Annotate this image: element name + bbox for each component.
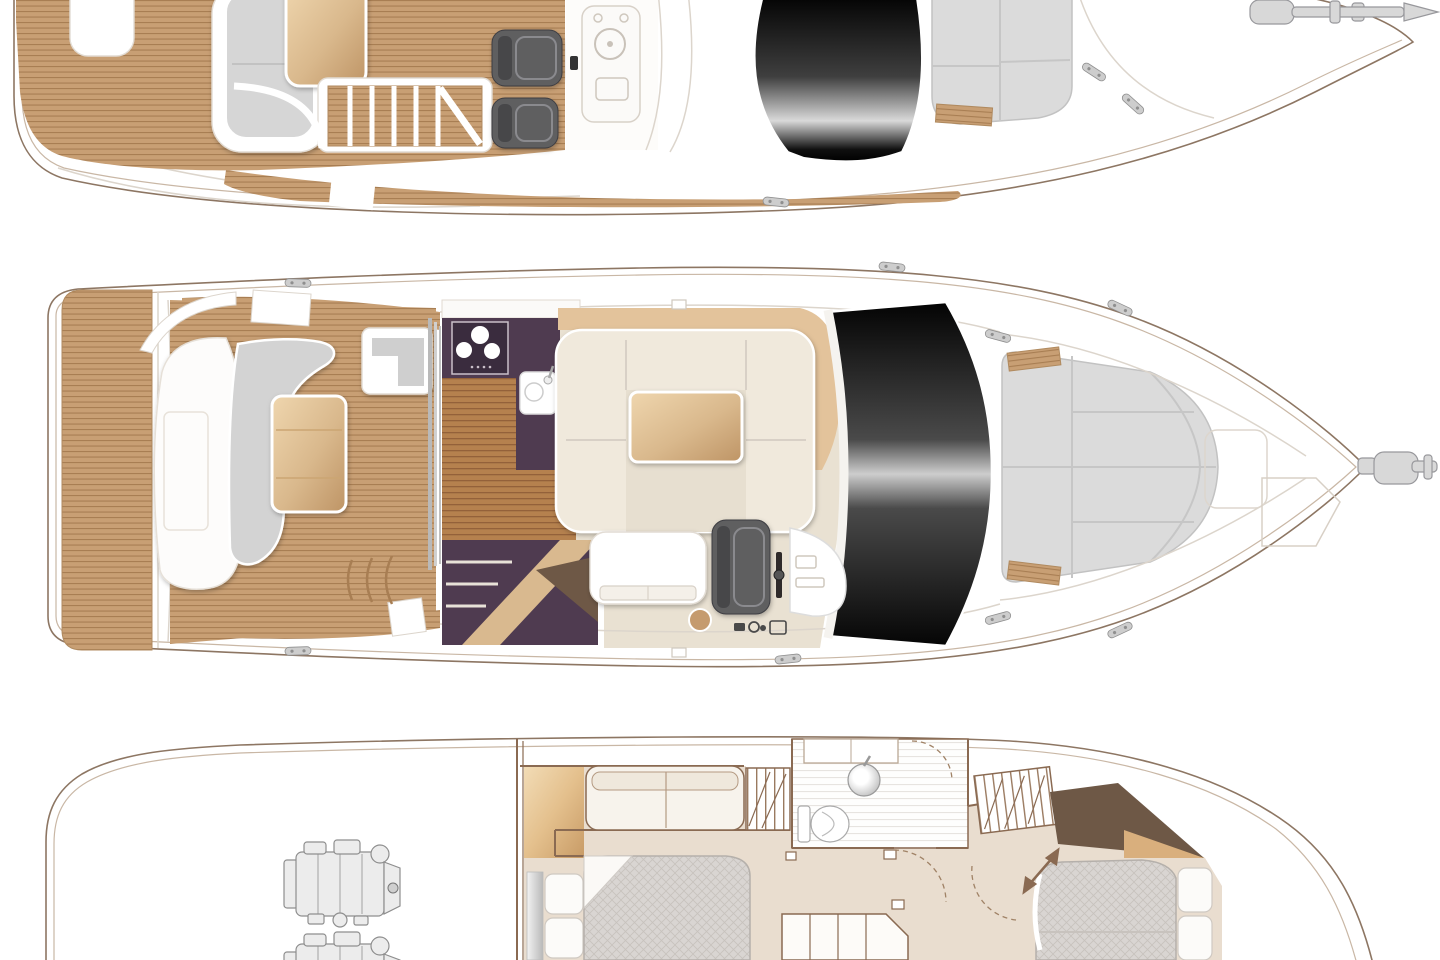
flybridge-view (14, 0, 1438, 215)
burner-left (456, 342, 472, 358)
deck-step-bottom (672, 648, 686, 657)
mattress (1036, 860, 1176, 960)
swim-platform-teak (62, 290, 152, 650)
flybridge-table (286, 0, 366, 86)
mid-cabin-wardrobe (746, 768, 790, 830)
main-windscreen (826, 302, 992, 646)
toilet (798, 806, 849, 842)
door-jamb (786, 852, 796, 860)
companionway-stairwell (442, 540, 598, 645)
forward-cabin-bed (1035, 860, 1212, 960)
washbasin (848, 764, 880, 796)
wet-bar (362, 328, 432, 394)
flybridge-bow-sunpad (932, 0, 1072, 126)
staircase (782, 914, 908, 960)
flybridge-helm-seat-1 (492, 30, 562, 86)
sliding-door-track (428, 318, 441, 570)
door-jamb (884, 850, 896, 859)
port-boarding-gate (251, 290, 311, 326)
door-jamb (892, 900, 904, 909)
bow-sunpad-teak-step (935, 104, 992, 126)
flybridge-helm-seat-2 (492, 98, 558, 148)
burner-large (471, 326, 489, 344)
main-anchor-windlass (1358, 452, 1437, 484)
stbd-boarding-gate (388, 598, 426, 636)
galley-sink (520, 366, 556, 414)
console-fascia (582, 6, 640, 122)
flybridge-sidedeck-gate (329, 180, 375, 210)
burner-right (484, 343, 500, 359)
flybridge-aft-hatch (70, 0, 134, 56)
main-deck-view (48, 262, 1437, 667)
steering-wheel-hub (607, 41, 613, 47)
pillow (1178, 868, 1212, 912)
mid-cabin-sofa (586, 766, 744, 830)
cockpit-table (272, 396, 346, 512)
pillow (545, 874, 583, 914)
cleat (879, 262, 906, 273)
bedside-shelf (527, 872, 543, 960)
lower-deck-view (46, 737, 1374, 960)
cleat (285, 279, 311, 288)
pillow (545, 918, 583, 958)
forward-cabin-wardrobe (974, 767, 1057, 834)
helm-seat (712, 520, 770, 614)
cleat (285, 647, 311, 656)
pillow (1178, 916, 1212, 960)
dinette-table (630, 392, 742, 462)
cockpit-speaker (689, 609, 711, 631)
companion-bench (590, 532, 706, 604)
yacht-floorplan-image (0, 0, 1440, 960)
throttle-lever (570, 56, 578, 70)
deck-step-top (672, 300, 686, 309)
steering-wheel-hub (774, 570, 784, 580)
stove (452, 322, 508, 374)
flybridge-helm-console (566, 0, 658, 150)
engine-port (284, 840, 400, 927)
dinette (556, 330, 814, 532)
deck-plans-svg (0, 0, 1440, 960)
flybridge-windscreen (755, 0, 922, 161)
